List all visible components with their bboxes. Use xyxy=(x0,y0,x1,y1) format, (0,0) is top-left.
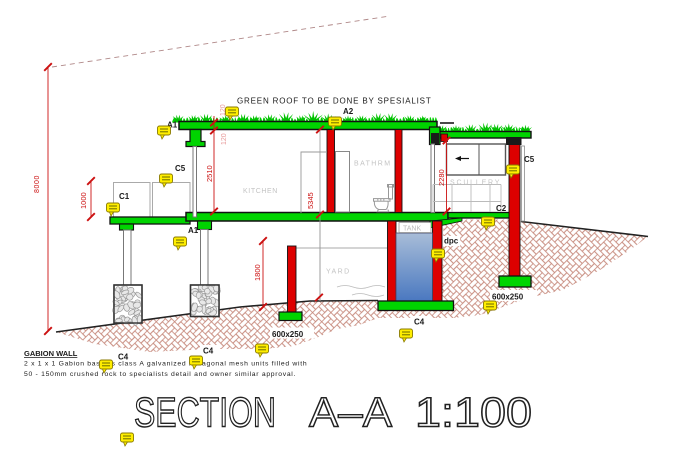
svg-text:1:100: 1:100 xyxy=(415,389,532,436)
svg-text:C4: C4 xyxy=(414,318,425,327)
svg-text:C4: C4 xyxy=(203,347,214,356)
svg-text:2280: 2280 xyxy=(437,169,446,186)
svg-text:dpc: dpc xyxy=(444,237,459,246)
svg-text:TANK: TANK xyxy=(403,226,421,233)
svg-text:KITCHEN: KITCHEN xyxy=(243,188,278,195)
svg-text:5345: 5345 xyxy=(306,192,315,209)
svg-text:2510: 2510 xyxy=(205,165,214,182)
svg-text:600x250: 600x250 xyxy=(272,330,304,339)
svg-text:A–A: A–A xyxy=(309,389,392,436)
svg-text:600x250: 600x250 xyxy=(492,293,524,302)
svg-text:2 x 1 x 1 Gabion baskets class: 2 x 1 x 1 Gabion baskets class A galvani… xyxy=(24,361,307,368)
svg-text:SECTION: SECTION xyxy=(134,389,276,436)
svg-text:50 - 150mm crushed rock to spe: 50 - 150mm crushed rock to specialists d… xyxy=(24,371,296,378)
svg-text:BATHRM: BATHRM xyxy=(354,161,391,168)
svg-text:1800: 1800 xyxy=(253,264,262,281)
svg-text:C5: C5 xyxy=(524,155,535,164)
svg-text:GREEN ROOF TO BE DONE BY SPESI: GREEN ROOF TO BE DONE BY SPESIALIST xyxy=(237,97,432,106)
svg-text:120: 120 xyxy=(221,133,228,145)
svg-text:C2: C2 xyxy=(496,204,507,213)
svg-text:A2: A2 xyxy=(343,107,354,116)
svg-text:YARD: YARD xyxy=(326,269,351,276)
svg-text:SCULLERY: SCULLERY xyxy=(450,180,501,187)
svg-text:8000: 8000 xyxy=(34,175,41,193)
svg-text:A1: A1 xyxy=(188,226,199,235)
svg-text:1000: 1000 xyxy=(79,192,88,209)
svg-text:C5: C5 xyxy=(175,164,186,173)
svg-text:C1: C1 xyxy=(119,192,130,201)
svg-text:GABION WALL: GABION WALL xyxy=(24,349,78,358)
